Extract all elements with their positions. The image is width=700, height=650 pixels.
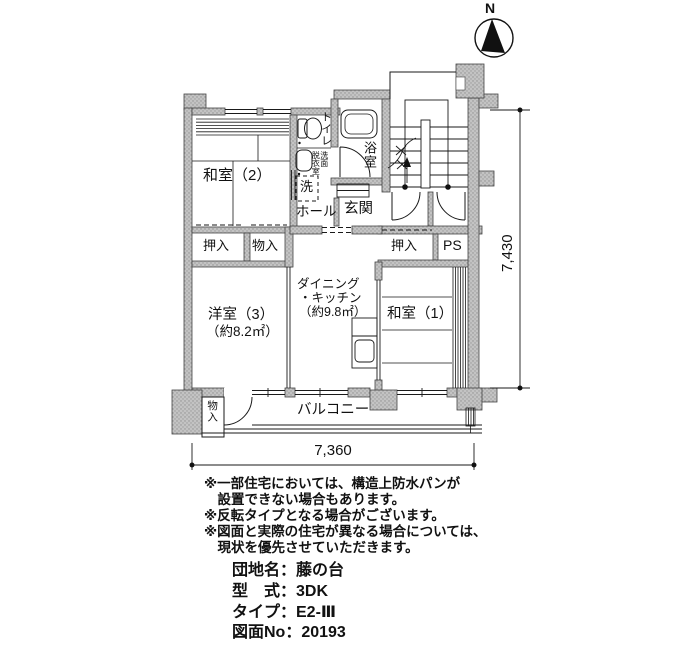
shoe-cabinet-icon <box>337 184 369 197</box>
room-label-closet-right: 押入 <box>391 239 417 254</box>
room-label-yoshitsu3: 洋室（3） <box>208 307 274 324</box>
room-label-dk-line2: ・キッチン <box>299 291 362 305</box>
kitchen-sink-icon <box>352 318 377 368</box>
compass-north-label: N <box>485 0 495 16</box>
pillar-notch <box>456 77 465 90</box>
room-label-pipe-space: PS <box>443 237 462 253</box>
note-line: 現状を優先させていただきます。 <box>204 540 486 556</box>
toilet-icon <box>298 118 322 144</box>
floor-plan-page: N 和室（2） トイレ 洗面 脱衣室 洗 浴室 ホール 玄関 押入 物入 押入 … <box>0 0 700 650</box>
notes-block: ※一部住宅においては、構造上防水パンが 設置できない場合もあります。 ※反転タイ… <box>204 476 486 556</box>
room-label-washitsu1: 和室（1） <box>387 306 453 323</box>
note-line: ※反転タイプとなる場合がございます。 <box>204 508 486 524</box>
dimension-horizontal: 7,360 <box>192 442 474 459</box>
info-drawing-no: 図面No：20193 <box>232 623 346 644</box>
info-block: 団地名：藤の台 型 式：3DK タイプ：E2-Ⅲ 図面No：20193 <box>232 561 346 644</box>
dimension-vertical: 7,430 <box>499 234 516 272</box>
room-label-storage-balcony: 物入 <box>206 400 218 423</box>
room-label-bath: 浴室 <box>361 141 376 169</box>
note-line: 設置できない場合もあります。 <box>204 492 486 508</box>
room-label-balcony: バルコニー <box>297 402 369 419</box>
room-label-storage-left: 物入 <box>252 239 278 254</box>
room-label-closet-left: 押入 <box>203 239 229 254</box>
north-compass-icon <box>475 19 513 57</box>
room-label-toilet: トイレ <box>319 111 332 147</box>
room-label-dk-line1: ダイニング <box>297 277 360 291</box>
room-label-dk-area: （約9.8㎡） <box>299 305 366 319</box>
room-label-washitsu2: 和室（2） <box>203 167 271 184</box>
washroom-line1: 洗面 <box>319 151 327 185</box>
label-washer: 洗 <box>300 180 313 195</box>
note-line: ※一部住宅においては、構造上防水パンが <box>204 476 486 492</box>
room-label-entrance: 玄関 <box>344 201 373 218</box>
info-plan-type: タイプ：E2-Ⅲ <box>232 603 346 624</box>
info-danchi-name: 団地名：藤の台 <box>232 561 346 582</box>
room-label-hall: ホール <box>296 204 337 220</box>
note-line: ※図面と実際の住宅が異なる場合については、 <box>204 524 486 540</box>
info-type: 型 式：3DK <box>232 582 346 603</box>
stairwell-outline <box>390 72 456 99</box>
staircase <box>388 100 468 190</box>
room-label-yoshitsu3-area: （約8.2㎡） <box>206 324 279 340</box>
washbasin-icon <box>296 150 312 175</box>
room-label-washroom: 洗面 脱衣室 <box>311 151 328 185</box>
